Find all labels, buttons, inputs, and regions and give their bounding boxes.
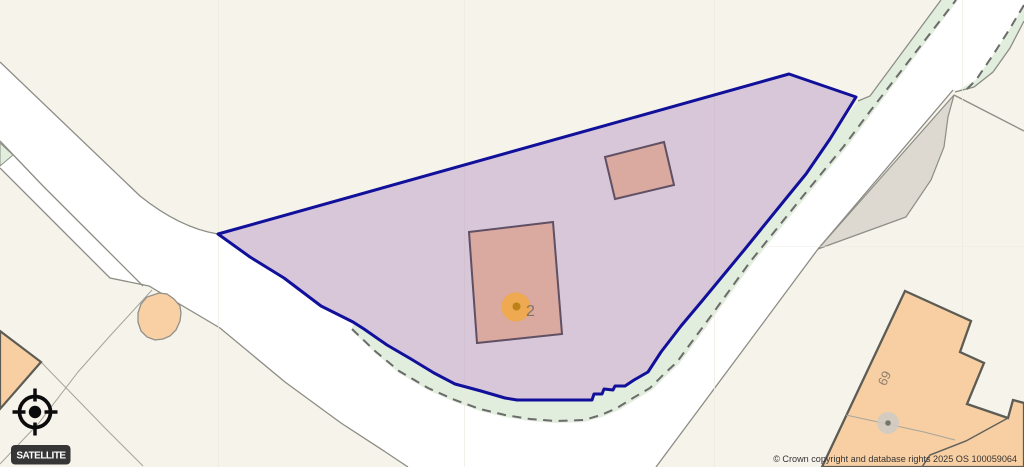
svg-text:© Crown copyright and database: © Crown copyright and database rights 20…: [773, 454, 1017, 464]
svg-text:SATELLITE: SATELLITE: [16, 451, 66, 462]
svg-text:2: 2: [526, 303, 535, 320]
